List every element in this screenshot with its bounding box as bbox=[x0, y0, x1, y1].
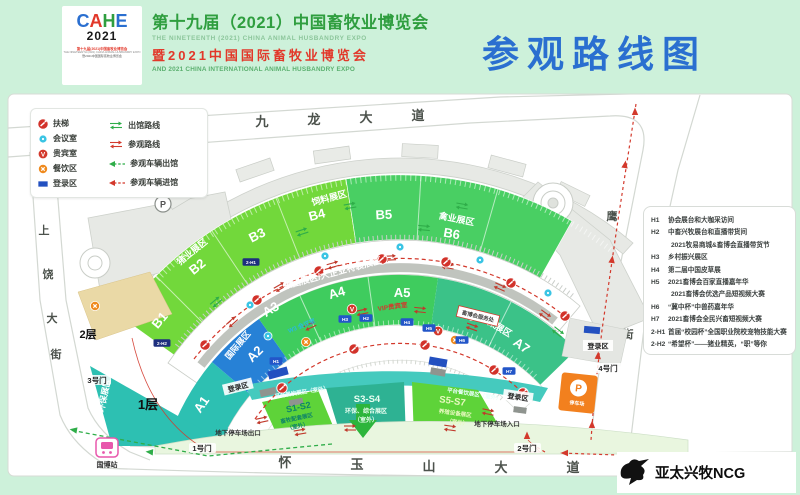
svg-text:登录区: 登录区 bbox=[587, 342, 609, 351]
expo-subtitle-en: AND 2021 CHINA INTERNATIONAL ANIMAL HUSB… bbox=[152, 66, 482, 73]
legend-label: 出馆路线 bbox=[128, 120, 160, 131]
note-code: 2-H1 bbox=[651, 327, 668, 339]
note-code: H7 bbox=[651, 314, 668, 326]
note-text: 2021畜博会百家直播嘉年华 bbox=[668, 279, 749, 286]
legend-item-escalator: 扶梯 bbox=[37, 116, 108, 131]
note-code: H5 bbox=[651, 277, 668, 289]
road-south-char: 玉 bbox=[350, 457, 363, 472]
expo-title-en: THE NINETEENTH (2021) CHINA ANIMAL HUSBA… bbox=[152, 35, 482, 42]
header: CAHE 2021 第十九届(2021)中国畜牧业博览会 THE NINETEE… bbox=[0, 0, 800, 90]
floor2-label: 2层 bbox=[79, 328, 96, 341]
road-south-char: 大 bbox=[494, 460, 507, 475]
legend-label: 参观路线 bbox=[128, 139, 160, 150]
note-text: 乡村振兴展区 bbox=[668, 254, 708, 261]
legend-item-dining: 餐饮区 bbox=[37, 161, 108, 176]
page-title: 参观路线图 bbox=[482, 24, 707, 78]
note-item-cont: 2021畜博会优选产品短视频大赛 bbox=[651, 289, 788, 301]
s34-label: S3-S4 bbox=[354, 394, 381, 405]
logo-letter: H bbox=[102, 11, 115, 31]
note-text: 首届“校园杯”全国职业院校宠物技能大赛 bbox=[668, 329, 787, 336]
legend-item-meeting: 会议室 bbox=[37, 131, 108, 146]
legend-label: 参观车辆进馆 bbox=[130, 177, 178, 188]
registration-icon bbox=[37, 178, 49, 190]
gate-3: 3号门 bbox=[87, 375, 106, 385]
legend-item-visit-route: 参观路线 bbox=[108, 135, 201, 154]
escalator-icon bbox=[37, 118, 49, 130]
note-code: 2-H2 bbox=[651, 339, 668, 351]
note-text: 中畜兴牧展台和直播带货间 bbox=[668, 229, 747, 236]
truck-parking: P 停车场 bbox=[558, 372, 598, 414]
note-item: H3乡村振兴展区 bbox=[651, 252, 788, 264]
dining-icon bbox=[37, 163, 49, 175]
map-legend: 扶梯 会议室 贵宾室 餐饮区 登录区 出馆路线 参观路线 参观车辆 bbox=[30, 108, 208, 198]
road-north-char: 大 bbox=[359, 110, 372, 125]
badge-h4: H4 bbox=[404, 320, 410, 326]
metro-station-icon bbox=[96, 438, 118, 457]
note-item: H4第二届中国皮草展 bbox=[651, 265, 788, 277]
legend-label: 扶梯 bbox=[53, 118, 69, 129]
note-code: H3 bbox=[651, 252, 668, 264]
legend-label: 餐饮区 bbox=[53, 163, 77, 174]
floor1-label: 1层 bbox=[138, 397, 158, 412]
screenshot-root: { "header": { "logo": { "letters": ["C",… bbox=[0, 0, 800, 495]
hall-label-b5: B5 bbox=[375, 207, 392, 223]
gate-2: 2号门 bbox=[517, 443, 536, 453]
badge-h5: H5 bbox=[426, 326, 432, 332]
note-item: 2-H2“希望杯”——猪业精英，“职”等你 bbox=[651, 339, 788, 351]
parking-exit-label: 地下停车场出口 bbox=[215, 428, 261, 437]
note-text: 协会展台和大咖采访间 bbox=[668, 217, 734, 224]
legend-item-exit-route: 出馆路线 bbox=[108, 116, 201, 135]
note-code: H4 bbox=[651, 265, 668, 277]
road-west-char: 饶 bbox=[43, 267, 54, 281]
road-south-char: 道 bbox=[566, 460, 579, 475]
gate-4: 4号门 bbox=[598, 363, 617, 373]
road-north-char: 道 bbox=[411, 108, 424, 123]
legend-item-vehicle-entry: 参观车辆进馆 bbox=[108, 173, 201, 192]
legend-label: 贵宾室 bbox=[53, 148, 77, 159]
road-west-char: 街 bbox=[50, 347, 62, 361]
parking-entry-label: 地下停车场入口 bbox=[474, 419, 520, 428]
road-north-char: 龙 bbox=[307, 112, 320, 127]
watermark: 亚太兴牧NCG bbox=[617, 452, 796, 493]
red-double-arrow-icon bbox=[108, 139, 124, 150]
expo-logo: CAHE 2021 第十九届(2021)中国畜牧业博览会 THE NINETEE… bbox=[62, 6, 142, 85]
note-item: H2中畜兴牧展台和直播带货间 bbox=[651, 227, 788, 239]
road-west-char: 上 bbox=[39, 223, 50, 237]
road-south-char: 山 bbox=[422, 459, 435, 474]
note-text: 第二届中国皮草展 bbox=[668, 267, 721, 274]
svg-text:P: P bbox=[160, 200, 166, 210]
note-text: 2021畜博会优选产品短视频大赛 bbox=[671, 291, 765, 298]
red-dash-arrow-icon bbox=[108, 179, 126, 187]
s34-suffix: （室外） bbox=[354, 416, 378, 424]
gate-1: 1号门 bbox=[192, 443, 211, 453]
badge-h6: H6 bbox=[459, 338, 465, 344]
legend-item-registration: 登录区 bbox=[37, 176, 108, 191]
logo-letter: A bbox=[89, 11, 102, 31]
event-notes-panel: H1协会展台和大咖采访间 H2中畜兴牧展台和直播带货间 2021牧易商城&畜博会… bbox=[643, 206, 796, 355]
note-text: 2021畜博会全民兴畜短视频大赛 bbox=[668, 316, 762, 323]
station-label: 国博站 bbox=[97, 460, 118, 469]
hall-label-b6: B6 bbox=[442, 225, 461, 243]
watermark-text: 亚太兴牧NCG bbox=[655, 462, 745, 483]
logo-year: 2021 bbox=[62, 29, 142, 43]
badge-2h2: 2-H2 bbox=[157, 341, 167, 346]
roundabout-left bbox=[80, 248, 110, 278]
logo-letter: E bbox=[115, 11, 127, 31]
road-east-char: 鹰 bbox=[607, 209, 618, 223]
badge-h1: H1 bbox=[273, 359, 279, 365]
note-text: “冀中杯”中兽药嘉年华 bbox=[668, 304, 734, 311]
hall-label-a5: A5 bbox=[394, 285, 411, 300]
badge-h2: H2 bbox=[363, 316, 369, 322]
legend-label: 登录区 bbox=[53, 178, 77, 189]
green-dash-arrow-icon bbox=[108, 160, 126, 168]
road-north-char: 九 bbox=[254, 114, 268, 129]
bird-logo-icon bbox=[617, 458, 651, 488]
badge-h3: H3 bbox=[342, 317, 348, 323]
registration-label-right: 登录区 bbox=[583, 340, 613, 351]
note-item: H6“冀中杯”中兽药嘉年华 bbox=[651, 302, 788, 314]
legend-label: 参观车辆出馆 bbox=[130, 158, 178, 169]
legend-item-vehicle-exit: 参观车辆出馆 bbox=[108, 154, 201, 173]
note-code: H1 bbox=[651, 215, 668, 227]
s34-desc: 环保、综合展区 bbox=[345, 407, 387, 415]
expo-title-block: 第十九届（2021）中国畜牧业博览会 THE NINETEENTH (2021)… bbox=[152, 9, 482, 73]
note-code: H6 bbox=[651, 302, 668, 314]
expo-subtitle-cn: 暨2021中国国际畜牧业博览会 bbox=[152, 45, 482, 64]
note-item-cont: 2021牧易商城&畜博会直播带货节 bbox=[651, 240, 788, 252]
green-double-arrow-icon bbox=[108, 120, 124, 131]
parking-icon-left: P bbox=[155, 196, 171, 212]
legend-item-vip: 贵宾室 bbox=[37, 146, 108, 161]
road-west-char: 大 bbox=[47, 311, 58, 325]
note-code: H2 bbox=[651, 227, 668, 239]
logo-tagline: 暨2021中国国际畜牧业博览会 bbox=[62, 54, 142, 58]
expo-title-cn: 第十九届（2021）中国畜牧业博览会 bbox=[152, 9, 482, 33]
logo-letter: C bbox=[76, 11, 89, 31]
road-south-char: 怀 bbox=[278, 455, 291, 470]
note-item: H72021畜博会全民兴畜短视频大赛 bbox=[651, 314, 788, 326]
note-item: H1协会展台和大咖采访间 bbox=[651, 215, 788, 227]
badge-h7: H7 bbox=[506, 369, 512, 375]
note-item: H52021畜博会百家直播嘉年华 bbox=[651, 277, 788, 289]
meeting-room-icon bbox=[37, 133, 49, 145]
note-text: 2021牧易商城&畜博会直播带货节 bbox=[671, 242, 770, 249]
vip-room-icon bbox=[37, 148, 49, 160]
legend-label: 会议室 bbox=[53, 133, 77, 144]
note-item: 2-H1首届“校园杯”全国职业院校宠物技能大赛 bbox=[651, 327, 788, 339]
badge-2h1: 2-H1 bbox=[246, 260, 256, 265]
note-text: “希望杯”——猪业精英，“职”等你 bbox=[668, 341, 767, 348]
